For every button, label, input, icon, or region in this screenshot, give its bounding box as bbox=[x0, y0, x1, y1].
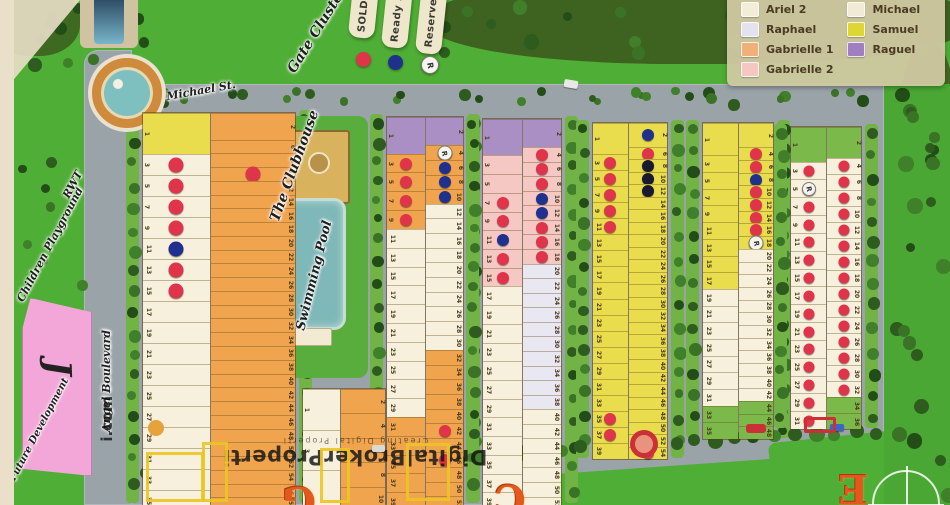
lot-number: 42 bbox=[553, 427, 559, 435]
lot-cell: 4 bbox=[523, 147, 561, 162]
lot-cell: 11 bbox=[483, 230, 522, 249]
lot-number: 5 bbox=[483, 182, 489, 186]
lot-number: 12 bbox=[553, 209, 559, 217]
lot-number: 23 bbox=[485, 348, 491, 356]
lot-cell: 3 bbox=[143, 154, 210, 175]
cluster-swatch bbox=[847, 22, 865, 37]
lot-cell: 38 bbox=[523, 395, 561, 410]
lot-number: 38 bbox=[455, 398, 461, 406]
lot-cell: 42 bbox=[739, 388, 773, 401]
lot-cell: 24 bbox=[426, 292, 463, 307]
lot-number: 25 bbox=[389, 366, 395, 374]
bush bbox=[128, 228, 137, 237]
lot-cell: 50 bbox=[523, 482, 561, 497]
lot-cell: 18 bbox=[629, 222, 667, 234]
sold-marker bbox=[400, 158, 412, 170]
lot-number: 34 bbox=[853, 401, 859, 409]
lot-cell: 5 bbox=[483, 174, 522, 193]
lot-cell: 38 bbox=[211, 360, 295, 374]
bush bbox=[475, 95, 483, 103]
lot-cell: 27 bbox=[593, 347, 628, 363]
lot-number: 17 bbox=[793, 292, 799, 300]
lot-number: 24 bbox=[659, 262, 665, 270]
sold-marker bbox=[497, 215, 509, 227]
bush bbox=[127, 307, 138, 318]
lot-block-6-col-left: 135R791113151719212325272931 bbox=[791, 127, 826, 429]
lot-cell: 34 bbox=[523, 366, 561, 381]
lot-cell: 52 bbox=[523, 497, 561, 505]
lot-cell: 19 bbox=[387, 304, 425, 323]
lot-number: 3 bbox=[483, 163, 489, 167]
lot-cell: 15 bbox=[593, 250, 628, 266]
lot-cell: 14 bbox=[827, 238, 861, 254]
lot-number: 2 bbox=[379, 400, 385, 404]
lot-cell: 6 bbox=[523, 162, 561, 177]
bush bbox=[688, 302, 697, 311]
bush bbox=[866, 322, 877, 333]
lot-cell: 30 bbox=[211, 305, 295, 319]
lot-cell: 6 bbox=[426, 160, 463, 175]
lot-number: 37 bbox=[485, 479, 491, 487]
lot-cell: 14 bbox=[523, 220, 561, 235]
lot-number: 24 bbox=[287, 267, 293, 275]
lot-cell: 10 bbox=[629, 172, 667, 184]
lot-cell: 8 bbox=[739, 173, 773, 186]
lot-number: 4 bbox=[855, 164, 861, 168]
bush bbox=[688, 389, 700, 401]
bush bbox=[674, 300, 684, 310]
lot-number: 50 bbox=[455, 485, 461, 493]
bush bbox=[867, 348, 879, 360]
lot-cell: 9 bbox=[143, 217, 210, 238]
lot-cell: 20 bbox=[426, 262, 463, 277]
bush bbox=[374, 214, 382, 222]
lot-cell: 26 bbox=[629, 272, 667, 284]
bush bbox=[674, 323, 686, 335]
lot-number: 20 bbox=[455, 266, 461, 274]
lot-number: 27 bbox=[145, 413, 151, 421]
lot-number: 36 bbox=[765, 353, 771, 361]
lot-cell: 7 bbox=[143, 196, 210, 217]
lot-number: 13 bbox=[145, 266, 151, 274]
lot-cell: 5R bbox=[791, 179, 826, 197]
sold-marker bbox=[839, 177, 850, 188]
lot-cell: 23 bbox=[703, 322, 738, 339]
bush bbox=[788, 428, 801, 441]
bush bbox=[578, 325, 587, 334]
lot-cell: 9 bbox=[703, 205, 738, 222]
lot-number: 32 bbox=[765, 328, 771, 336]
lot-number: 19 bbox=[389, 310, 395, 318]
lot-number: 23 bbox=[705, 327, 711, 335]
sold-marker bbox=[497, 197, 509, 209]
lot-number: 20 bbox=[659, 237, 665, 245]
sold-marker bbox=[536, 163, 548, 175]
bush bbox=[129, 138, 140, 149]
bush bbox=[936, 259, 950, 274]
lot-cell: 17 bbox=[593, 266, 628, 282]
bush bbox=[687, 166, 699, 178]
sold-marker bbox=[839, 336, 850, 347]
lot-cell: 1 bbox=[593, 123, 628, 154]
cluster-swatch bbox=[847, 2, 865, 17]
bush bbox=[63, 58, 73, 68]
poster-edge-corner bbox=[0, 0, 80, 96]
bush bbox=[867, 198, 876, 207]
lot-cell: 2 bbox=[426, 117, 463, 145]
lot-cell: 3 bbox=[483, 155, 522, 174]
lot-cell: 28 bbox=[426, 321, 463, 336]
lot-number: 29 bbox=[793, 399, 799, 407]
cluster-legend-item: Raguel bbox=[847, 42, 920, 57]
lot-number: 17 bbox=[705, 277, 711, 285]
lot-number: 15 bbox=[485, 273, 491, 281]
bush bbox=[867, 278, 878, 289]
lot-number: 5 bbox=[703, 179, 709, 183]
lot-number: 6 bbox=[555, 167, 561, 171]
lot-number: 32 bbox=[853, 386, 859, 394]
lot-cell: 12 bbox=[523, 205, 561, 220]
lot-cell: 12 bbox=[739, 198, 773, 211]
lot-number: 7 bbox=[593, 193, 599, 197]
lot-number: 7 bbox=[143, 205, 149, 209]
bush bbox=[776, 237, 785, 246]
sold-marker bbox=[536, 178, 548, 190]
lot-cell: 12 bbox=[827, 222, 861, 238]
highlight-rect-3 bbox=[320, 448, 350, 503]
lot-cell: 37 bbox=[593, 427, 628, 443]
highlight-rect-2 bbox=[202, 442, 228, 502]
bush bbox=[689, 343, 702, 356]
lot-number: 11 bbox=[705, 227, 711, 235]
lot-cell: 30 bbox=[827, 365, 861, 381]
bush bbox=[777, 169, 786, 178]
lot-cell: 6 bbox=[739, 160, 773, 173]
lot-cell: 12 bbox=[426, 204, 463, 219]
lot-cell: 30 bbox=[523, 336, 561, 351]
lot-number: 8 bbox=[379, 473, 385, 477]
bush bbox=[674, 164, 682, 172]
bush bbox=[470, 243, 480, 253]
cluster-name: Raguel bbox=[872, 43, 915, 56]
bush bbox=[537, 87, 546, 96]
lot-cell: 15 bbox=[791, 269, 826, 287]
bush bbox=[579, 173, 589, 183]
lot-number: 14 bbox=[553, 224, 559, 232]
lot-number: 21 bbox=[705, 310, 711, 318]
lot-cell: 46 bbox=[211, 415, 295, 429]
bush bbox=[925, 143, 935, 153]
bush bbox=[41, 184, 50, 193]
sold-marker bbox=[750, 212, 762, 224]
sold-marker bbox=[497, 272, 509, 284]
watermark-side: i.com bbox=[98, 396, 116, 442]
bush bbox=[127, 203, 139, 215]
lot-cell: 6 bbox=[827, 174, 861, 190]
lot-number: 39 bbox=[389, 498, 395, 505]
lot-cell: 25 bbox=[143, 385, 210, 406]
bush bbox=[467, 120, 476, 129]
cluster-swatch bbox=[847, 42, 865, 57]
site-plan-map: J 13579111315171921232527293133352681012… bbox=[0, 0, 950, 505]
lot-number: 22 bbox=[553, 282, 559, 290]
lot-cell: 26 bbox=[211, 277, 295, 291]
lot-cell: 22 bbox=[426, 277, 463, 292]
lot-number: 9 bbox=[703, 212, 709, 216]
sold-marker bbox=[803, 201, 814, 212]
lot-number: 27 bbox=[793, 381, 799, 389]
bush bbox=[578, 124, 587, 133]
bush bbox=[579, 198, 589, 208]
bush bbox=[672, 207, 681, 216]
lot-number: 31 bbox=[705, 394, 711, 402]
lot-number: 13 bbox=[793, 256, 799, 264]
lot-cell: 22 bbox=[211, 250, 295, 264]
lot-number: 12 bbox=[765, 201, 771, 209]
lot-cell: 11 bbox=[703, 222, 738, 239]
lot-number: 46 bbox=[659, 399, 665, 407]
lot-cell: 5 bbox=[143, 175, 210, 196]
lot-number: 18 bbox=[765, 239, 771, 247]
bush bbox=[906, 243, 915, 252]
sold-marker bbox=[400, 214, 412, 226]
lot-number: 25 bbox=[705, 344, 711, 352]
lot-cell: 30 bbox=[739, 312, 773, 325]
bush bbox=[373, 233, 383, 243]
lot-number: 14 bbox=[455, 222, 461, 230]
lot-cell: 27 bbox=[791, 376, 826, 394]
lot-number: 29 bbox=[705, 377, 711, 385]
bush bbox=[778, 150, 791, 163]
sold-marker bbox=[839, 368, 850, 379]
lot-number: 24 bbox=[853, 322, 859, 330]
lot-cell: 15 bbox=[483, 268, 522, 287]
bush bbox=[468, 366, 481, 379]
lot-number: 48 bbox=[553, 471, 559, 479]
lot-cell: 20 bbox=[629, 234, 667, 246]
lot-number: 12 bbox=[853, 226, 859, 234]
sold-marker bbox=[536, 149, 548, 161]
lot-number: 17 bbox=[485, 292, 491, 300]
lot-number: 34 bbox=[765, 340, 771, 348]
lot-number: 5 bbox=[593, 177, 599, 181]
bush bbox=[46, 202, 56, 212]
bush bbox=[672, 144, 685, 157]
lot-number: 1 bbox=[387, 134, 393, 138]
lot-cell: 8 bbox=[211, 153, 295, 167]
bush bbox=[468, 261, 479, 272]
lot-number: 23 bbox=[389, 347, 395, 355]
lot-number: 36 bbox=[553, 384, 559, 392]
lot-cell: 2 bbox=[211, 113, 295, 140]
sold-marker bbox=[839, 257, 850, 268]
lot-number: 18 bbox=[659, 224, 665, 232]
sold-marker bbox=[497, 253, 509, 265]
cluster-name: Samuel bbox=[872, 23, 918, 36]
lot-block-4: 1357911131517192123252729313335373926810… bbox=[592, 122, 668, 460]
car-bottom-road bbox=[372, 445, 385, 452]
bush bbox=[372, 156, 381, 165]
sold-marker bbox=[604, 157, 616, 169]
bush bbox=[615, 7, 626, 18]
lot-cell: 18R bbox=[739, 236, 773, 249]
lot-cell: 16 bbox=[629, 209, 667, 221]
lot-cell: 24 bbox=[827, 317, 861, 333]
lot-cell: 10 bbox=[827, 206, 861, 222]
lot-number: 36 bbox=[455, 383, 461, 391]
bush bbox=[687, 324, 697, 334]
lot-number: 10 bbox=[853, 210, 859, 218]
lot-number: 46 bbox=[287, 418, 293, 426]
lot-cell: 29 bbox=[483, 399, 522, 418]
lot-cell: 27 bbox=[387, 379, 425, 398]
bush bbox=[77, 280, 88, 291]
sold-marker bbox=[169, 158, 184, 173]
lot-number: 39 bbox=[595, 447, 601, 455]
lot-number: 19 bbox=[145, 329, 151, 337]
lot-cell: 13 bbox=[143, 259, 210, 280]
lot-cell: 18 bbox=[426, 248, 463, 263]
ready-stock-marker bbox=[642, 173, 654, 185]
cluster-legend-item: Ariel 2 bbox=[741, 2, 833, 17]
sold-marker bbox=[839, 241, 850, 252]
bush bbox=[687, 207, 698, 218]
ready-stock-tag-label: Ready Stock bbox=[388, 0, 408, 48]
bush bbox=[470, 139, 479, 148]
lot-number: 29 bbox=[389, 404, 395, 412]
lot-cell: 28 bbox=[523, 322, 561, 337]
lot-number: 3 bbox=[593, 161, 599, 165]
lot-number: 11 bbox=[793, 238, 799, 246]
cluster-swatch bbox=[741, 22, 759, 37]
sold-marker bbox=[803, 219, 814, 230]
lot-block-6-col-right: 24681012141618202224262830323436 bbox=[826, 127, 861, 429]
sold-marker bbox=[642, 148, 654, 160]
sold-marker bbox=[803, 344, 814, 355]
lot-cell: 39 bbox=[593, 443, 628, 459]
sold-marker bbox=[803, 166, 814, 177]
lot-number: 16 bbox=[659, 212, 665, 220]
reserved-marker: R bbox=[437, 146, 452, 161]
lot-cell: 40 bbox=[629, 359, 667, 371]
lot-cell: 16 bbox=[739, 223, 773, 236]
lot-number: 20 bbox=[553, 267, 559, 275]
lot-number: 22 bbox=[455, 281, 461, 289]
bush bbox=[28, 58, 42, 72]
lot-number: 30 bbox=[287, 308, 293, 316]
lot-cell: 36 bbox=[629, 334, 667, 346]
lot-cell: 44 bbox=[739, 401, 773, 414]
lot-number: 8 bbox=[767, 177, 773, 181]
ready-stock-marker bbox=[536, 207, 548, 219]
lot-cell: 1 bbox=[143, 113, 210, 154]
lot-number: 11 bbox=[595, 223, 601, 231]
lot-cell: 24 bbox=[629, 259, 667, 271]
lot-cell: 13 bbox=[593, 234, 628, 250]
lot-number: 21 bbox=[145, 350, 151, 358]
lot-cell: 3 bbox=[791, 162, 826, 180]
lot-number: 13 bbox=[595, 239, 601, 247]
reserved-marker-circle: R bbox=[421, 56, 439, 74]
lot-number: 5 bbox=[791, 187, 797, 191]
bush bbox=[130, 369, 139, 378]
lot-number: 42 bbox=[659, 374, 665, 382]
lot-cell: 26 bbox=[523, 307, 561, 322]
lot-cell: 14 bbox=[629, 197, 667, 209]
bush bbox=[868, 414, 877, 423]
lot-cell: 13 bbox=[703, 239, 738, 256]
lot-cell: 20 bbox=[827, 286, 861, 302]
lot-cell: 38 bbox=[739, 363, 773, 376]
lot-number: 40 bbox=[553, 413, 559, 421]
lot-cell: 33 bbox=[593, 395, 628, 411]
lot-cell: 21 bbox=[143, 343, 210, 364]
lot-number: 38 bbox=[765, 366, 771, 374]
cluster-name: Raphael bbox=[766, 23, 816, 36]
lot-number: 32 bbox=[553, 355, 559, 363]
bush bbox=[869, 369, 882, 382]
lot-number: 31 bbox=[485, 423, 491, 431]
lot-number: 16 bbox=[853, 258, 859, 266]
highlight-circle bbox=[148, 420, 164, 436]
lot-number: 23 bbox=[145, 371, 151, 379]
lot-cell: 11 bbox=[143, 238, 210, 259]
lot-number: 5 bbox=[387, 180, 393, 184]
lot-number: 25 bbox=[595, 335, 601, 343]
cluster-legend-item: Gabrielle 2 bbox=[741, 62, 833, 77]
lot-cell: 15 bbox=[387, 267, 425, 286]
lot-cell: 22 bbox=[739, 262, 773, 275]
lot-cell: 4R bbox=[426, 145, 463, 160]
lot-number: 18 bbox=[553, 253, 559, 261]
sold-marker-dot bbox=[356, 52, 371, 67]
bush bbox=[374, 322, 385, 333]
lot-number: 11 bbox=[389, 235, 395, 243]
lot-cell: 29 bbox=[703, 372, 738, 389]
bush bbox=[578, 306, 588, 316]
ready-stock-marker bbox=[536, 193, 548, 205]
lot-number: 12 bbox=[455, 207, 461, 215]
lot-number: 19 bbox=[705, 294, 711, 302]
sold-marker bbox=[750, 224, 762, 236]
lot-number: 48 bbox=[659, 412, 665, 420]
bush bbox=[139, 37, 150, 48]
lot-number: 3 bbox=[703, 162, 709, 166]
ready-stock-marker bbox=[439, 162, 451, 174]
lot-cell: 13 bbox=[791, 251, 826, 269]
lot-number: 28 bbox=[853, 354, 859, 362]
lot-cell: 34 bbox=[827, 397, 861, 413]
lot-cell: 32 bbox=[426, 350, 463, 365]
lot-number: 6 bbox=[457, 166, 463, 170]
gate-waterfall bbox=[94, 0, 124, 44]
lot-number: 32 bbox=[659, 312, 665, 320]
bush bbox=[470, 410, 479, 419]
lot-number: 4 bbox=[555, 153, 561, 157]
cluster-name: Gabrielle 2 bbox=[766, 63, 833, 76]
sold-marker bbox=[604, 429, 616, 441]
lot-cell: 19 bbox=[791, 304, 826, 322]
lot-cell: 10 bbox=[426, 189, 463, 204]
sold-marker bbox=[803, 290, 814, 301]
lot-number: 28 bbox=[287, 294, 293, 302]
lot-number: 37 bbox=[389, 479, 395, 487]
lot-cell: 6 bbox=[629, 147, 667, 159]
bush bbox=[776, 212, 787, 223]
lot-cell: 4 bbox=[827, 158, 861, 174]
lot-number: 1 bbox=[791, 143, 797, 147]
cluster-legend-item: Raphael bbox=[741, 22, 833, 37]
